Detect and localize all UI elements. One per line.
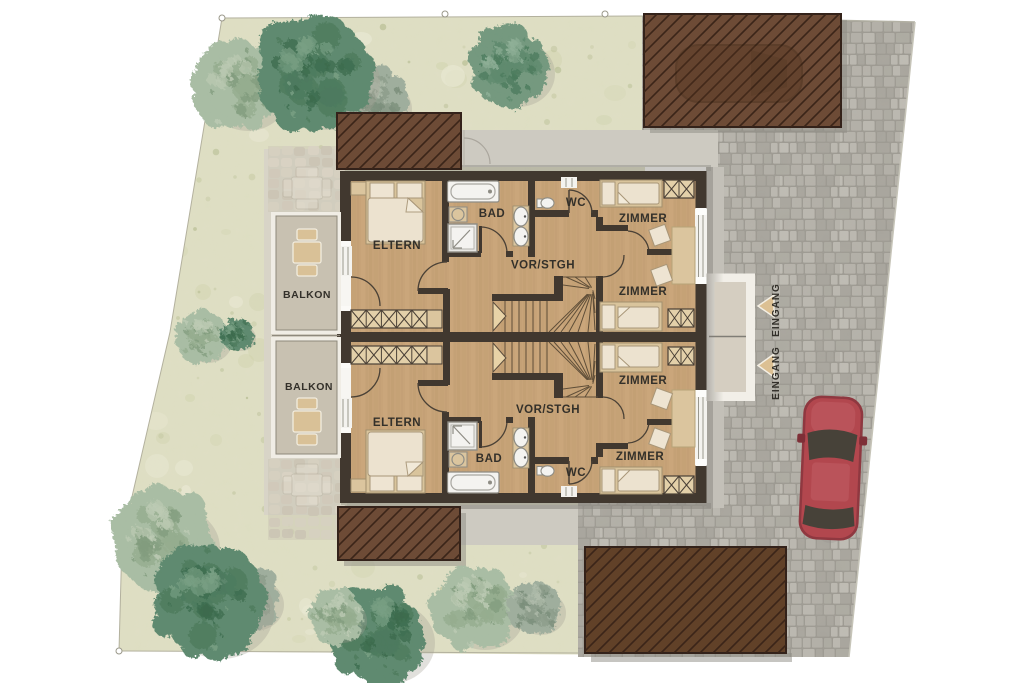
svg-text:VOR/STGH: VOR/STGH	[516, 404, 580, 416]
svg-text:VOR/STGH: VOR/STGH	[511, 260, 575, 272]
svg-text:WC: WC	[566, 197, 586, 209]
svg-text:ELTERN: ELTERN	[373, 417, 421, 429]
svg-text:EINGANG: EINGANG	[771, 283, 782, 337]
svg-text:WC: WC	[566, 467, 586, 479]
svg-text:BAD: BAD	[476, 453, 502, 465]
svg-text:ZIMMER: ZIMMER	[619, 286, 668, 298]
svg-text:BALKON: BALKON	[285, 381, 333, 393]
svg-text:EINGANG: EINGANG	[771, 346, 782, 400]
svg-text:BALKON: BALKON	[283, 289, 331, 301]
svg-text:ZIMMER: ZIMMER	[619, 213, 668, 225]
svg-text:ZIMMER: ZIMMER	[616, 451, 665, 463]
svg-text:ZIMMER: ZIMMER	[619, 375, 668, 387]
svg-text:ELTERN: ELTERN	[373, 240, 421, 252]
svg-text:BAD: BAD	[479, 208, 505, 220]
